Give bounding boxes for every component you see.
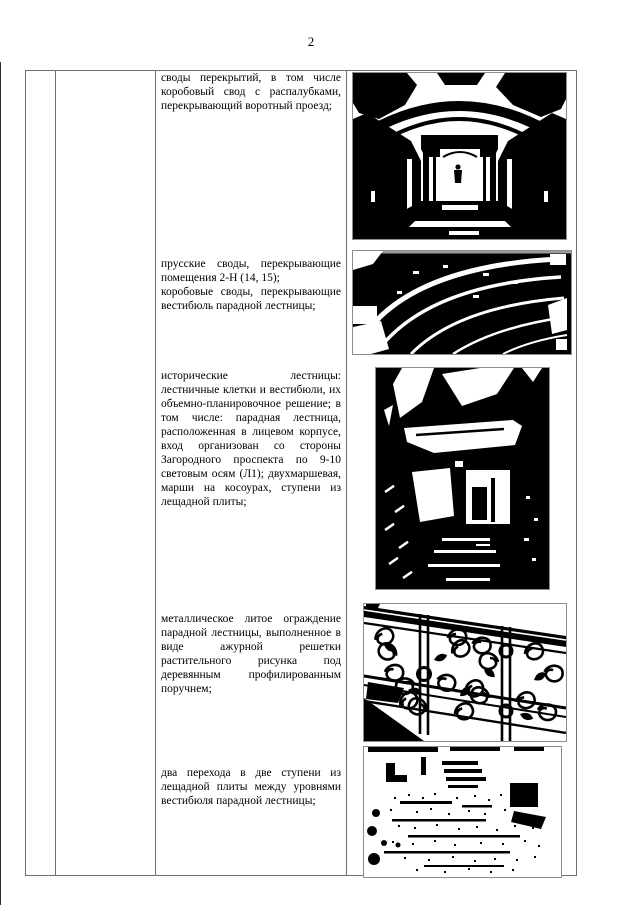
description-prussian-vaults: прусские своды, перекрывающие помещения …	[161, 257, 341, 313]
photo-prussian-vaults	[352, 250, 572, 355]
paragraph: исторические лестницы: лестничные клетки…	[161, 369, 341, 509]
photo-gate-passage-vault	[352, 72, 567, 240]
gate-passage-photo-canvas	[353, 73, 566, 239]
staircase-photo-canvas	[376, 368, 549, 589]
description-two-steps: два перехода в две ступени из лещадной п…	[161, 766, 341, 808]
table-cell-descriptions: своды перекрытий, в том числе коробовый …	[156, 71, 346, 875]
table-cell-index	[26, 71, 55, 875]
prussian-vaults-photo-canvas	[353, 251, 571, 354]
paragraph: два перехода в две ступени из лещадной п…	[161, 766, 341, 808]
scan-edge-artifact	[0, 62, 1, 905]
paragraph: металлическое литое ограждение парадной …	[161, 612, 341, 696]
document-page: 2 своды перекрытий, в том числе коробовы…	[0, 0, 640, 905]
steps-photo-canvas	[364, 747, 561, 877]
description-historic-stairs: исторические лестницы: лестничные клетки…	[161, 369, 341, 509]
description-cast-railing: металлическое литое ограждение парадной …	[161, 612, 341, 696]
photo-vestibule-steps	[363, 746, 562, 878]
photo-main-staircase	[375, 367, 550, 590]
paragraph: прусские своды, перекрывающие помещения …	[161, 257, 341, 285]
page-number: 2	[0, 34, 622, 50]
features-table: своды перекрытий, в том числе коробовый …	[25, 70, 577, 876]
table-cell-subject	[56, 71, 155, 875]
railing-photo-canvas	[364, 604, 566, 741]
paragraph: своды перекрытий, в том числе коробовый …	[161, 71, 341, 113]
paragraph: коробовые своды, перекрывающие вестибюль…	[161, 285, 341, 313]
photo-stair-railing	[363, 603, 567, 742]
table-cell-photos	[347, 71, 576, 875]
description-ceiling-vaults: своды перекрытий, в том числе коробовый …	[161, 71, 341, 113]
